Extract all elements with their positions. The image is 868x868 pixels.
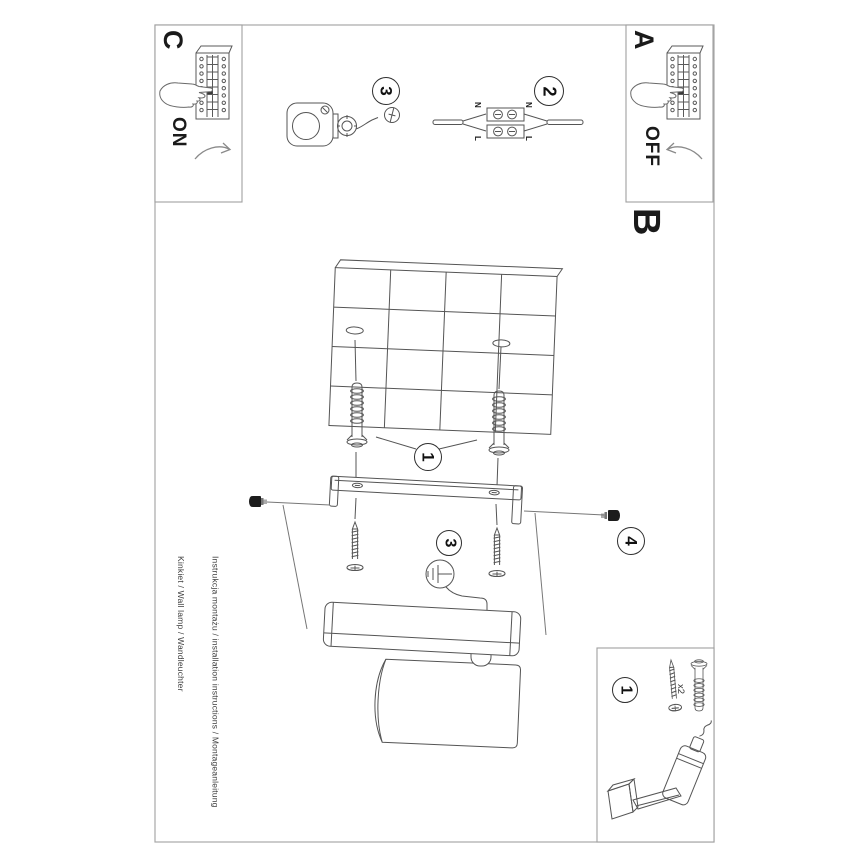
wire-label-l-left: L [473, 136, 482, 141]
terminal-block-drawing [433, 108, 583, 138]
instruction-sheet: C ON A OFF B N N L L 3 2 1 3 4 1 x2 Inst… [0, 0, 868, 868]
step-3-badge-top: 3 [372, 77, 400, 105]
footer-instructions: Instrukcja montażu / installation instru… [163, 556, 244, 846]
lamp-base-drawing [323, 602, 521, 656]
section-b-letter: B [624, 208, 667, 235]
wire-label-l-right: L [524, 136, 533, 141]
footer-line-1: Instrukcja montażu / installation instru… [209, 556, 221, 846]
tiled-wall-drawing [329, 260, 562, 435]
lamp-shade-drawing [373, 659, 520, 748]
step-4-badge: 4 [617, 527, 645, 555]
connector-drawing [287, 103, 400, 146]
panel-c-letter: C [157, 30, 188, 51]
parts-qty-label: x2 [675, 684, 686, 694]
screws-drawing [347, 498, 505, 577]
earth-symbol-drawing [426, 560, 487, 614]
step-3-badge-mid: 3 [436, 530, 462, 556]
footer-line-2: Kinkiet / Wall lamp / Wandleuchter [175, 556, 187, 846]
panel-a-state-label: OFF [640, 126, 662, 167]
step-2-badge: 2 [534, 76, 564, 106]
step-1-badge: 1 [414, 443, 442, 471]
parts-step-badge: 1 [612, 677, 638, 703]
wire-label-n-right: N [524, 102, 533, 108]
bracket-drawing [329, 476, 523, 524]
wire-label-n-left: N [473, 102, 482, 108]
line-art-layer [0, 0, 868, 868]
panel-c-state-label: ON [167, 117, 189, 148]
panel-c-drawing [155, 25, 242, 202]
panel-a-letter: A [628, 30, 659, 51]
parts-box-drawing [597, 648, 720, 842]
panel-a-drawing [626, 25, 713, 202]
